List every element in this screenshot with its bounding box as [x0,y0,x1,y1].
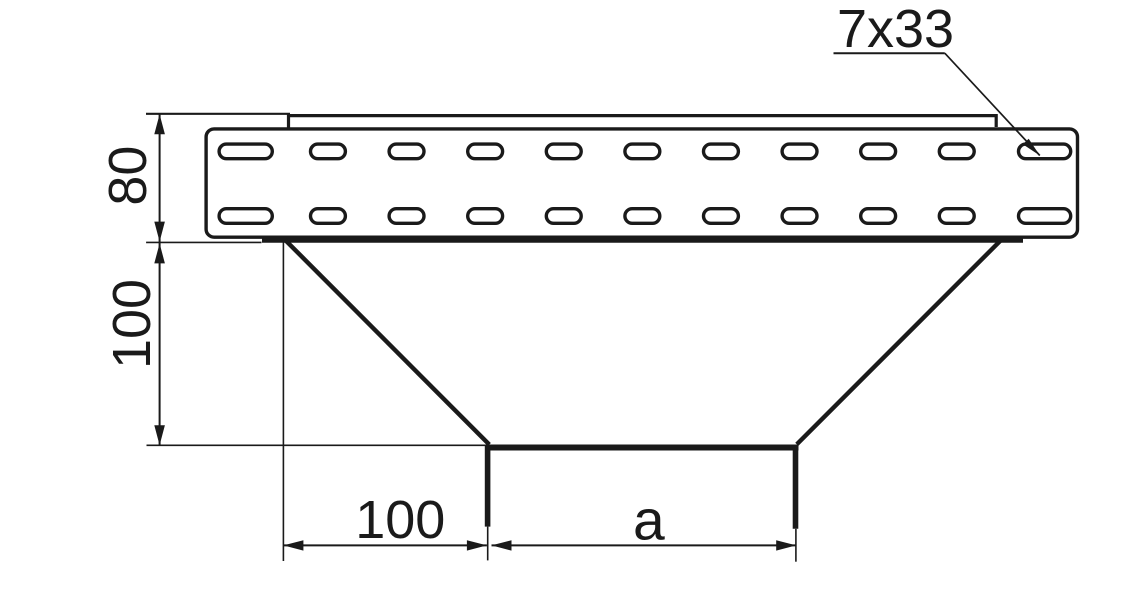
svg-text:100: 100 [102,279,162,369]
svg-text:a: a [633,489,665,553]
svg-text:100: 100 [355,490,445,550]
svg-text:80: 80 [98,146,158,206]
svg-text:7x33: 7x33 [837,0,954,59]
